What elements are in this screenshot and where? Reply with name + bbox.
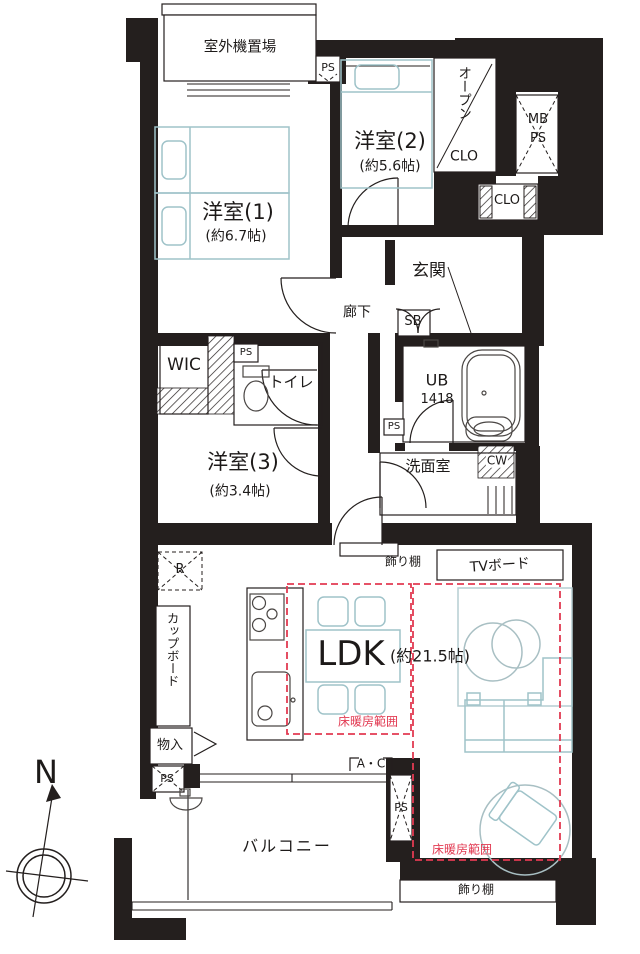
floor-plan: 室外機置場 PS 洋室(2) (約5.6帖) オープン CLO MB PS CL… — [0, 0, 640, 954]
label-bedroom2-name: 洋室(2) — [354, 130, 426, 152]
label-bedroom2-size: (約5.6帖) — [359, 160, 420, 175]
label-mb: MB — [528, 113, 548, 127]
label-sb: SB — [404, 315, 421, 329]
label-floor-heating-b: 床暖房範囲 — [432, 844, 492, 857]
label-bathroom-name: UB — [426, 373, 449, 390]
label-ps-toilet: PS — [240, 348, 252, 359]
label-bedroom3-size: (約3.4帖) — [209, 485, 270, 500]
label-hallway: 廊下 — [343, 306, 371, 321]
label-shelf-top: 飾り棚 — [385, 556, 421, 569]
label-clo-right: CLO — [494, 194, 520, 208]
label-bedroom1-name: 洋室(1) — [202, 201, 274, 223]
label-ps-left: PS — [160, 773, 174, 785]
label-bedroom3-name: 洋室(3) — [207, 451, 279, 473]
label-shelf-bottom: 飾り棚 — [458, 884, 494, 897]
label-open-closet-clo: CLO — [450, 150, 478, 165]
label-ldk-size: (約21.5帖) — [390, 649, 470, 666]
label-ac: A・C — [357, 758, 386, 771]
label-compass-n: N — [34, 756, 58, 790]
label-entrance: 玄関 — [412, 263, 446, 281]
compass — [6, 784, 88, 917]
label-bathroom-size: 1418 — [420, 393, 453, 407]
label-cw: CW — [486, 455, 508, 468]
label-ps-top: PS — [321, 62, 335, 74]
label-mb-ps: PS — [530, 132, 546, 146]
label-ps-washroom: PS — [388, 422, 400, 433]
label-toilet: トイレ — [268, 375, 313, 391]
label-floor-heating-a: 床暖房範囲 — [338, 716, 398, 729]
label-open-closet-vertical: オープン — [456, 66, 470, 120]
label-ps-bottom: PS — [394, 802, 408, 814]
label-cupboard: カップボード — [165, 612, 178, 687]
label-washroom: 洗面室 — [405, 459, 450, 475]
label-storage: 物入 — [157, 739, 183, 753]
label-wic: WIC — [167, 357, 201, 375]
label-ldk-name: LDK — [317, 637, 384, 673]
label-bedroom1-size: (約6.7帖) — [205, 230, 266, 245]
label-refrigerator: R — [175, 563, 184, 577]
label-balcony: バルコニー — [242, 839, 332, 856]
label-outdoor-unit: 室外機置場 — [204, 40, 277, 55]
